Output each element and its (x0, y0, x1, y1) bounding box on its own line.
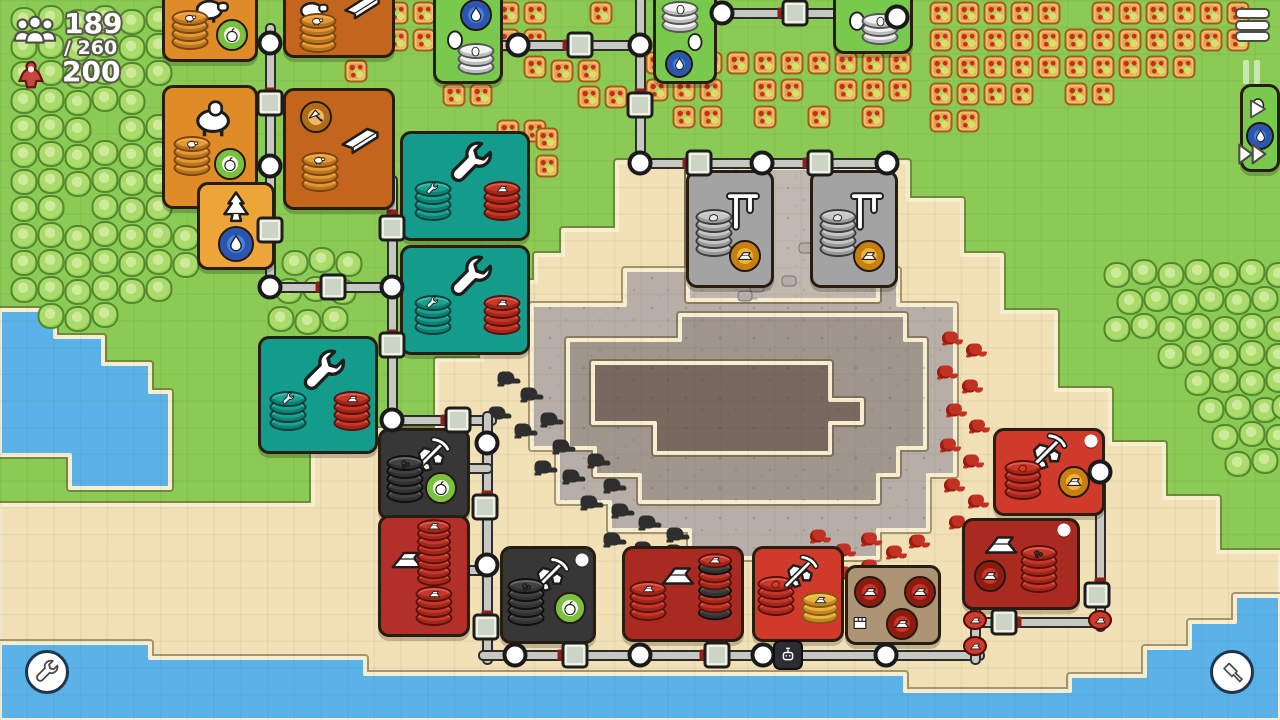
loose-stones (782, 276, 797, 287)
apple-coin (554, 592, 586, 624)
crop-tile (835, 52, 858, 75)
tree (295, 309, 322, 335)
coal-deposit (612, 504, 629, 517)
belt-connector[interactable] (562, 642, 589, 669)
tree (11, 277, 38, 303)
tree (1212, 367, 1239, 393)
ingot-icon (658, 556, 698, 596)
tree (38, 303, 65, 329)
crop-tile (1065, 56, 1088, 79)
tree (1252, 448, 1279, 474)
tree (1239, 340, 1266, 366)
crop-tile (754, 52, 777, 75)
building-pasture-1[interactable] (162, 0, 258, 62)
crop-tile (930, 29, 953, 52)
tree (322, 306, 349, 332)
tree (65, 252, 92, 278)
resource-stack-wrench (414, 295, 451, 335)
tree (92, 194, 119, 220)
belt-connector[interactable] (379, 332, 406, 359)
coal-deposit (563, 470, 580, 483)
tree (11, 115, 38, 141)
settler-count: 200 (62, 58, 120, 86)
pause-icon (1243, 60, 1249, 84)
crop-tile (984, 83, 1007, 106)
gold-coin (853, 240, 885, 272)
conveyor-node[interactable] (874, 643, 899, 668)
tree (38, 141, 65, 167)
crop-tile (957, 83, 980, 106)
crop-tile (524, 56, 547, 79)
belt-item-ingot (963, 636, 987, 656)
crop-tile (1038, 29, 1061, 52)
building-stone-mine-1[interactable] (686, 170, 774, 288)
coal-deposit (604, 479, 621, 492)
tree (1104, 316, 1131, 342)
coal-deposit (588, 454, 605, 467)
resource-stack-sheep (301, 152, 338, 192)
coal-deposit (553, 440, 570, 453)
crop-tile (1092, 56, 1115, 79)
crop-tile (1011, 29, 1034, 52)
tree (119, 224, 146, 250)
crop-tile (1011, 2, 1034, 25)
box-icon (850, 613, 870, 633)
settler-icon (14, 58, 48, 96)
tree (173, 252, 200, 278)
crop-tile (1065, 29, 1088, 52)
crop-tile (1173, 56, 1196, 79)
belt-connector[interactable] (257, 217, 284, 244)
crop-tile (930, 56, 953, 79)
crop-tile (443, 84, 466, 107)
crop-tile (1011, 83, 1034, 106)
tree (268, 306, 295, 332)
crop-tile (1119, 56, 1142, 79)
resource-stack-sheep (172, 10, 209, 50)
tree (1212, 316, 1239, 342)
loose-stones (738, 291, 753, 302)
tree (1225, 289, 1252, 315)
tree (1239, 259, 1266, 285)
belt-connector[interactable] (807, 150, 834, 177)
crop-tile (1038, 2, 1061, 25)
coal-deposit (667, 528, 684, 541)
tree (146, 222, 173, 248)
redingot-coin (904, 576, 936, 608)
coalpick-icon (780, 552, 820, 592)
tree (1131, 259, 1158, 285)
belt-connector[interactable] (379, 215, 406, 242)
conveyor-node[interactable] (503, 643, 528, 668)
hamburger-icon (1237, 10, 1268, 17)
coal-deposit (581, 496, 598, 509)
conveyor-node[interactable] (380, 275, 405, 300)
coal-deposit (639, 516, 656, 529)
crop-tile (605, 86, 628, 109)
tree (1225, 451, 1252, 477)
building-coal-mine-2[interactable] (500, 546, 596, 644)
tree (11, 196, 38, 222)
conveyor-node[interactable] (750, 151, 775, 176)
belt-connector[interactable] (627, 92, 654, 119)
building-furnace-3[interactable] (962, 518, 1080, 610)
resource-stack-ingot (416, 586, 453, 626)
redingot-coin (854, 576, 886, 608)
conveyor-node[interactable] (628, 151, 653, 176)
resource-stack-coal (508, 578, 545, 626)
tree (38, 168, 65, 194)
building-furnace-2[interactable] (622, 546, 744, 642)
tree (92, 140, 119, 166)
coal-deposit (541, 413, 558, 426)
conveyor-node[interactable] (875, 151, 900, 176)
tree (38, 114, 65, 140)
tree (1212, 424, 1239, 450)
crop-tile (984, 29, 1007, 52)
tree (173, 225, 200, 251)
boost-badge (576, 554, 589, 567)
tree (11, 142, 38, 168)
resource-stack-egg (457, 43, 494, 75)
conveyor-node[interactable] (258, 275, 283, 300)
conveyor-node[interactable] (258, 154, 283, 179)
tree (1198, 286, 1225, 312)
crop-tile (862, 52, 885, 75)
crop-tile (1173, 2, 1196, 25)
tree (92, 221, 119, 247)
crop-tile (1119, 2, 1142, 25)
tree (1171, 289, 1198, 315)
coal-deposit (521, 388, 538, 401)
belt-connector[interactable] (1084, 582, 1111, 609)
crop-tile (862, 79, 885, 102)
crop-tile (754, 106, 777, 129)
tree-icon (216, 190, 256, 230)
coal-deposit (498, 372, 515, 385)
gold-coin (1058, 466, 1090, 498)
crop-tile (1092, 29, 1115, 52)
resource-stack-wrench (414, 181, 451, 221)
conveyor-node[interactable] (885, 5, 910, 30)
tree (119, 116, 146, 142)
robot-node[interactable] (773, 640, 803, 670)
boost-badge (1085, 434, 1098, 447)
wool-icon (192, 96, 238, 142)
building-chicken-coop-1[interactable] (653, 0, 717, 84)
crop-tile (1173, 29, 1196, 52)
crop-tile (345, 60, 368, 83)
crop-tile (1092, 2, 1115, 25)
crop-tile (578, 86, 601, 109)
tree (92, 275, 119, 301)
crop-tile (1200, 2, 1223, 25)
conveyor-node[interactable] (380, 408, 405, 433)
tree (11, 250, 38, 276)
belt-connector[interactable] (686, 150, 713, 177)
building-smelter-1[interactable] (752, 546, 844, 642)
crop-tile (470, 84, 493, 107)
build-button[interactable] (1210, 650, 1254, 694)
crop-tile (957, 2, 980, 25)
conveyor-belt[interactable] (478, 650, 896, 661)
pause-button[interactable] (1243, 60, 1265, 84)
tree (119, 62, 146, 88)
resource-stack-ingot (484, 181, 521, 221)
conveyor-node[interactable] (628, 33, 653, 58)
egg-icon (682, 28, 708, 54)
building-stone-mine-2[interactable] (810, 170, 898, 288)
coal-deposit (535, 461, 552, 474)
tree (146, 249, 173, 275)
coal-deposit (515, 424, 532, 437)
crop-tile (536, 155, 559, 178)
belt-connector[interactable] (473, 614, 500, 641)
conveyor-node[interactable] (751, 643, 776, 668)
settler-counter: 200 (14, 58, 120, 96)
crop-tile (1119, 29, 1142, 52)
crop-tile (984, 2, 1007, 25)
boost-badge (1057, 523, 1070, 536)
tree (65, 117, 92, 143)
ingot-icon (981, 525, 1021, 565)
crop-tile (781, 52, 804, 75)
crop-tile (957, 110, 980, 133)
tree (282, 250, 309, 276)
tree (65, 171, 92, 197)
tree (1239, 370, 1266, 396)
tree (65, 144, 92, 170)
conveyor-belt[interactable] (635, 0, 646, 173)
tree (1158, 343, 1185, 369)
plank-icon (341, 0, 383, 27)
population-icon (12, 10, 58, 60)
population-current: 189 (64, 10, 122, 38)
crop-tile (930, 110, 953, 133)
building-depot[interactable] (845, 565, 941, 645)
crop-tile (1146, 2, 1169, 25)
conveyor-node[interactable] (258, 31, 283, 56)
tree (38, 222, 65, 248)
building-coal-mine-1[interactable] (378, 428, 470, 520)
crop-tile (524, 2, 547, 25)
crop-tile (673, 106, 696, 129)
tree (1212, 262, 1239, 288)
conveyor-node[interactable] (628, 643, 653, 668)
menu-button[interactable] (1237, 10, 1268, 45)
resource-stack-coal (1020, 545, 1057, 593)
tree (11, 169, 38, 195)
resource-stack-sheep (174, 136, 211, 176)
tree (1239, 313, 1266, 339)
tree (146, 276, 173, 302)
crop-tile (781, 79, 804, 102)
belt-connector[interactable] (472, 494, 499, 521)
apple-coin (425, 472, 457, 504)
building-furnace-1[interactable] (378, 515, 470, 637)
crop-tile (578, 60, 601, 83)
tree (1185, 313, 1212, 339)
tree (92, 167, 119, 193)
play-button[interactable] (1245, 97, 1269, 121)
belt-item-ingot (963, 610, 987, 630)
tree (119, 251, 146, 277)
resource-stack-ingot (484, 295, 521, 335)
crop-tile (536, 128, 559, 151)
resource-stack-ore (1004, 460, 1041, 500)
crop-tile (1146, 56, 1169, 79)
apple-coin (214, 148, 246, 180)
apple-coin (216, 19, 248, 51)
belt-connector[interactable] (257, 90, 284, 117)
crop-tile (957, 56, 980, 79)
fast-forward-button[interactable] (1236, 138, 1268, 170)
tree (1198, 397, 1225, 423)
plank-icon (338, 118, 382, 162)
tree (1239, 421, 1266, 447)
conveyor-node[interactable] (1088, 460, 1113, 485)
redingot-coin (974, 560, 1006, 592)
crop-tile (808, 106, 831, 129)
trowel-coin (300, 101, 332, 133)
conveyor-node[interactable] (475, 431, 500, 456)
coal-deposit (604, 533, 621, 546)
redingot-coin (886, 608, 918, 640)
building-construction-yard[interactable] (283, 88, 395, 210)
resource-stack-sheep (299, 13, 336, 53)
tree (1158, 262, 1185, 288)
belt-connector[interactable] (704, 642, 731, 669)
crop-tile (590, 2, 613, 25)
population-counter: 189 / 260 (12, 10, 122, 60)
crane-icon (722, 190, 764, 232)
building-barn-1[interactable] (283, 0, 395, 58)
building-workshop-1[interactable] (400, 131, 530, 241)
crop-tile (930, 83, 953, 106)
building-workshop-2[interactable] (400, 245, 530, 355)
tree (1185, 259, 1212, 285)
tree (92, 302, 119, 328)
crop-tile (754, 79, 777, 102)
conveyor-node[interactable] (475, 553, 500, 578)
tools-button[interactable] (25, 650, 69, 694)
crop-tile (835, 79, 858, 102)
tree (1225, 394, 1252, 420)
tree (119, 143, 146, 169)
tree (1117, 289, 1144, 315)
tree (1185, 370, 1212, 396)
crop-tile (957, 29, 980, 52)
tree (65, 225, 92, 251)
tree (119, 9, 146, 35)
tree (119, 278, 146, 304)
tree (65, 306, 92, 332)
resource-stack-wrench (270, 391, 307, 431)
belt-connector[interactable] (320, 274, 347, 301)
tree (65, 279, 92, 305)
resource-stack-ingot (417, 519, 451, 587)
game-map (0, 0, 1280, 720)
crop-tile (889, 79, 912, 102)
tree (1104, 262, 1131, 288)
crop-tile (1038, 56, 1061, 79)
crane-icon (846, 190, 888, 232)
crop-tile (808, 52, 831, 75)
crop-tile (1011, 56, 1034, 79)
crop-tile (889, 52, 912, 75)
tree (119, 35, 146, 61)
conveyor-node[interactable] (710, 1, 735, 26)
crop-tile (862, 106, 885, 129)
tree (119, 89, 146, 115)
tree (1212, 343, 1239, 369)
resource-stack-ingot (698, 553, 732, 621)
tree (309, 247, 336, 273)
belt-connector[interactable] (782, 0, 809, 27)
crop-tile (984, 56, 1007, 79)
tree (1131, 313, 1158, 339)
resource-stack-ingot (334, 391, 371, 431)
tree (38, 195, 65, 221)
building-workshop-3[interactable] (258, 336, 378, 454)
belt-connector[interactable] (567, 32, 594, 59)
drop-coin (665, 50, 693, 78)
lake (0, 310, 170, 488)
crop-tile (930, 2, 953, 25)
resource-stack-ingot (802, 592, 839, 624)
building-well-farm-1[interactable] (433, 0, 503, 84)
tree (1185, 340, 1212, 366)
crop-tile (727, 52, 750, 75)
tree (1144, 286, 1171, 312)
gold-coin (729, 240, 761, 272)
belt-connector[interactable] (991, 609, 1018, 636)
crop-tile (700, 106, 723, 129)
drop-coin (218, 226, 254, 262)
tree (38, 249, 65, 275)
crop-tile (1065, 83, 1088, 106)
tree (11, 223, 38, 249)
conveyor-node[interactable] (506, 33, 531, 58)
tree (1252, 286, 1279, 312)
tree (1158, 316, 1185, 342)
belt-item-ingot (1088, 610, 1112, 630)
crop-tile (1092, 83, 1115, 106)
crop-tile (1146, 29, 1169, 52)
tree (92, 248, 119, 274)
belt-connector[interactable] (445, 407, 472, 434)
tree (146, 60, 173, 86)
tree (119, 197, 146, 223)
resource-stack-coal (387, 455, 424, 503)
tree (119, 170, 146, 196)
crop-tile (551, 60, 574, 83)
tree (38, 276, 65, 302)
crop-tile (1200, 29, 1223, 52)
